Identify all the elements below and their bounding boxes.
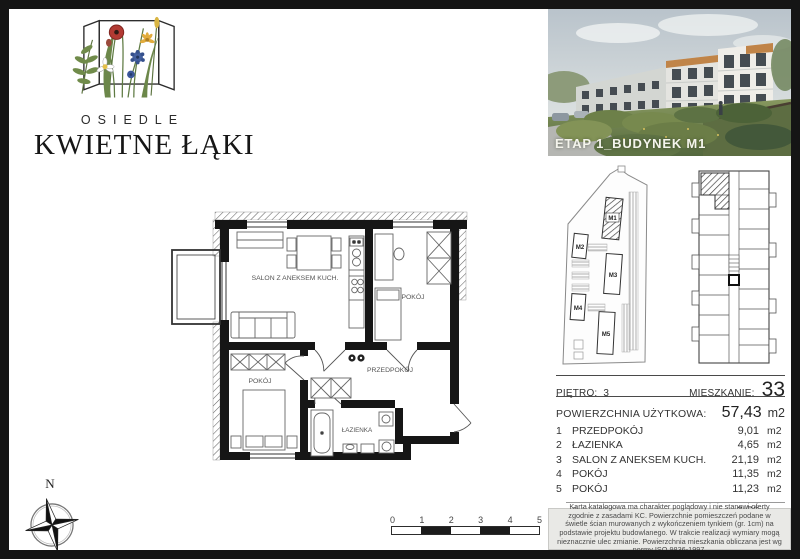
compass-north-icon: N bbox=[17, 475, 87, 557]
scale-bar-ticks: 0 1 2 3 4 5 bbox=[390, 515, 542, 526]
scale-bar: 0 1 2 3 4 5 bbox=[390, 515, 542, 535]
table-row: 2 ŁAZIENKA 4,65 m2 bbox=[556, 438, 785, 452]
disclaimer-note: Karta katalogowa ma charakter poglądowy … bbox=[548, 508, 791, 550]
elevator-core bbox=[729, 275, 739, 285]
table-row: 5 POKÓJ 11,23 m2 bbox=[556, 482, 785, 496]
room-number: 5 bbox=[556, 482, 572, 496]
floor-plan-room-label: SALON Z ANEKSEM KUCH. bbox=[252, 275, 339, 282]
room-name: POKÓJ bbox=[572, 482, 715, 496]
site-plan: M1 M2 M3 M4 M5 bbox=[548, 162, 681, 374]
scale-tick: 3 bbox=[478, 515, 483, 526]
apartment-floor-plan: SALON Z ANEKSEM KUCH. POKÓJ PRZEDPOKÓJ P… bbox=[165, 192, 495, 522]
room-area: 11,35 bbox=[715, 467, 759, 481]
room-unit: m2 bbox=[759, 482, 785, 496]
room-number: 1 bbox=[556, 424, 572, 438]
usable-area-label: POWIERZCHNIA UŻYTKOWA: bbox=[556, 408, 706, 420]
scale-tick: 1 bbox=[419, 515, 424, 526]
room-number: 4 bbox=[556, 467, 572, 481]
building-photo-illustration bbox=[548, 9, 791, 156]
room-area: 4,65 bbox=[715, 438, 759, 452]
building-floor-plan bbox=[681, 159, 791, 376]
apartment-details: PIĘTRO:3 MIESZKANIE: 33 POWIERZCHNIA UŻY… bbox=[556, 375, 785, 523]
scale-tick: 4 bbox=[508, 515, 513, 526]
site-plan-building-label: M2 bbox=[576, 245, 585, 251]
room-unit: m2 bbox=[759, 453, 785, 467]
site-plan-building-label: M4 bbox=[574, 306, 583, 312]
site-plan-building-label: M5 bbox=[602, 332, 611, 338]
site-plan-building-label: M3 bbox=[609, 273, 618, 279]
apartment-number: 33 bbox=[762, 379, 785, 400]
table-row: 3 SALON Z ANEKSEM KUCH. 21,19 m2 bbox=[556, 453, 785, 467]
usable-area-unit: m2 bbox=[768, 406, 785, 420]
room-unit: m2 bbox=[759, 438, 785, 452]
room-name: POKÓJ bbox=[572, 467, 715, 481]
floor-plan-room-label: POKÓJ bbox=[401, 292, 424, 301]
brand-name: KWIETNE ŁĄKI bbox=[34, 129, 224, 162]
room-name: SALON Z ANEKSEM KUCH. bbox=[572, 453, 715, 467]
disclaimer-text: Karta katalogowa ma charakter poglądowy … bbox=[557, 503, 782, 555]
room-unit: m2 bbox=[759, 467, 785, 481]
scale-tick: 5 bbox=[537, 515, 542, 526]
site-plan-building-label: M1 bbox=[608, 216, 617, 222]
floor-plan-room-label: ŁAZIENKA bbox=[342, 427, 373, 434]
brand-logo: OSIEDLE KWIETNE ŁĄKI bbox=[34, 13, 224, 162]
catalog-card: OSIEDLE KWIETNE ŁĄKI bbox=[0, 0, 800, 559]
info-panel: ETAP 1_BUDYNEK M1 bbox=[548, 9, 791, 550]
scale-bar-segments bbox=[391, 526, 540, 535]
floor-plan-room-label: POKÓJ bbox=[248, 376, 271, 385]
floor-apartment-row: PIĘTRO:3 MIESZKANIE: 33 bbox=[556, 376, 785, 396]
room-area: 9,01 bbox=[715, 424, 759, 438]
room-name: PRZEDPOKÓJ bbox=[572, 424, 715, 438]
photo-caption: ETAP 1_BUDYNEK M1 bbox=[555, 136, 706, 151]
floor-plan-room-label: PRZEDPOKÓJ bbox=[367, 365, 413, 374]
floor-label: PIĘTRO: bbox=[556, 388, 597, 399]
table-row: 4 POKÓJ 11,35 m2 bbox=[556, 467, 785, 481]
apartment-label: MIESZKANIE: bbox=[689, 388, 755, 399]
building-photo: ETAP 1_BUDYNEK M1 bbox=[548, 9, 791, 156]
brand-subtitle: OSIEDLE bbox=[34, 113, 224, 127]
room-number: 2 bbox=[556, 438, 572, 452]
room-number: 3 bbox=[556, 453, 572, 467]
logo-flowers-icon bbox=[64, 13, 194, 109]
room-area: 11,23 bbox=[715, 482, 759, 496]
usable-area-row: POWIERZCHNIA UŻYTKOWA: 57,43 m2 bbox=[556, 397, 785, 421]
scale-tick: 2 bbox=[449, 515, 454, 526]
compass-label: N bbox=[45, 476, 55, 491]
scale-tick: 0 bbox=[390, 515, 395, 526]
room-area: 21,19 bbox=[715, 453, 759, 467]
usable-area-value: 57,43 bbox=[722, 404, 762, 422]
room-list: 1 PRZEDPOKÓJ 9,01 m2 2 ŁAZIENKA 4,65 m2 … bbox=[556, 424, 785, 496]
table-row: 1 PRZEDPOKÓJ 9,01 m2 bbox=[556, 424, 785, 438]
floor-value: 3 bbox=[603, 388, 609, 399]
room-name: ŁAZIENKA bbox=[572, 438, 715, 452]
room-unit: m2 bbox=[759, 424, 785, 438]
